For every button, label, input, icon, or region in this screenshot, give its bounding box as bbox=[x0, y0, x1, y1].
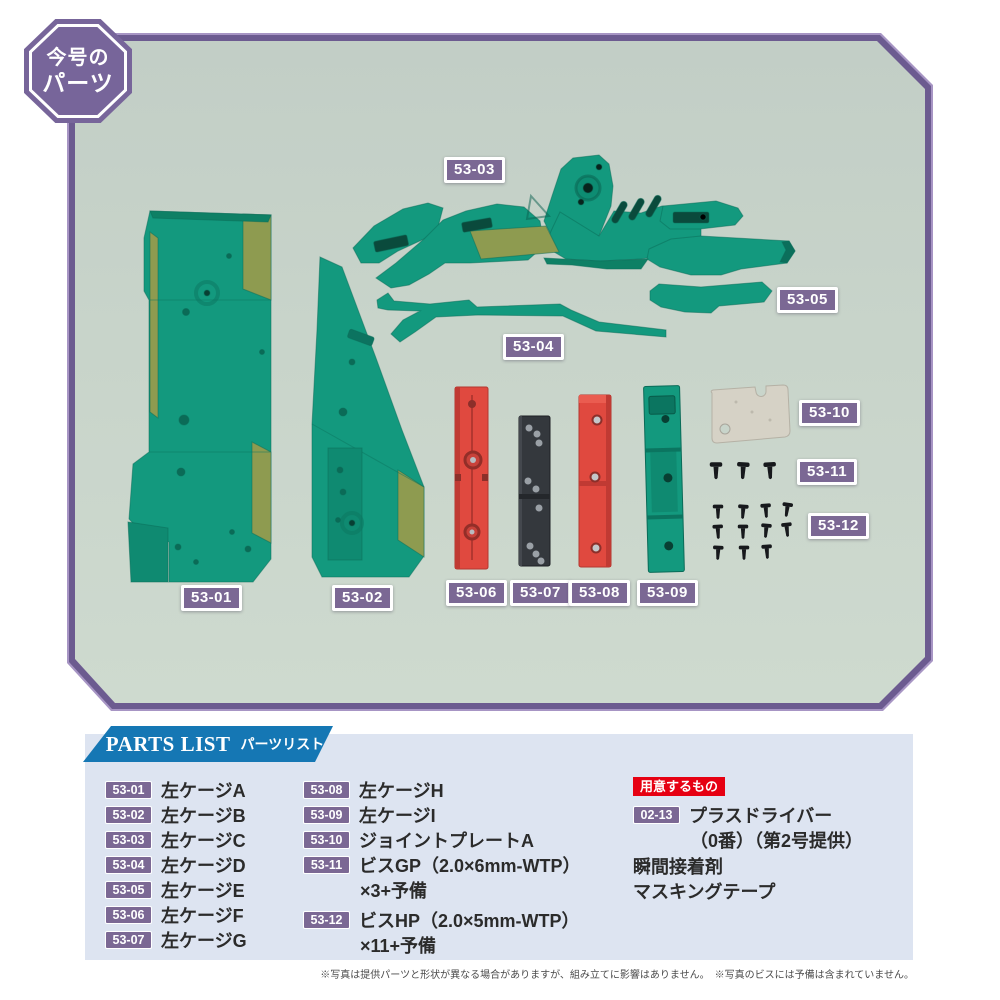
list-item: 53-01左ケージA bbox=[105, 777, 247, 802]
list-item-continuation: ×11+予備 bbox=[303, 932, 581, 958]
parts-list-title-en: PARTS LIST bbox=[106, 732, 231, 757]
code-badge: 02-13 bbox=[633, 806, 680, 824]
magazine-parts-page: { "colors": { "frame_purple": "#6c5b90",… bbox=[0, 0, 1000, 1000]
part-label-53-10: 53-10 bbox=[799, 400, 860, 426]
list-item-continuation: ×3+予備 bbox=[303, 877, 581, 903]
part-label-53-07: 53-07 bbox=[510, 580, 571, 606]
list-item: 53-04左ケージD bbox=[105, 852, 247, 877]
code-badge: 53-11 bbox=[303, 856, 350, 874]
part-label-53-05: 53-05 bbox=[777, 287, 838, 313]
code-badge: 53-06 bbox=[105, 906, 152, 924]
part-label-53-09: 53-09 bbox=[637, 580, 698, 606]
parts-list-banner: PARTS LIST パーツリスト bbox=[83, 726, 333, 762]
parts-list-title-ja: パーツリスト bbox=[240, 734, 324, 754]
list-item: 瞬間接着剤 bbox=[633, 853, 863, 878]
part-label-53-02: 53-02 bbox=[332, 585, 393, 611]
code-badge: 53-09 bbox=[303, 806, 350, 824]
part-label-53-01: 53-01 bbox=[181, 585, 242, 611]
footnote: ※写真は提供パーツと形状が異なる場合がありますが、組み立てに影響はありません。 … bbox=[85, 966, 914, 981]
list-item: 53-11ビスGP（2.0×6mm-WTP） bbox=[303, 852, 581, 877]
code-badge: 53-05 bbox=[105, 881, 152, 899]
list-item: 53-09左ケージI bbox=[303, 802, 581, 827]
code-badge: 53-01 bbox=[105, 781, 152, 799]
list-item: 53-12ビスHP（2.0×5mm-WTP） bbox=[303, 907, 581, 932]
badge-inner-octagon: 今号の パーツ bbox=[32, 27, 124, 115]
code-badge: 53-03 bbox=[105, 831, 152, 849]
prepare-header-badge: 用意するもの bbox=[633, 777, 725, 796]
parts-list-column-1: 53-01左ケージA 53-02左ケージB 53-03左ケージC 53-04左ケ… bbox=[105, 777, 247, 952]
badge-line1: 今号の bbox=[47, 46, 110, 70]
list-item: 02-13プラスドライバー bbox=[633, 802, 863, 827]
issue-parts-badge: 今号の パーツ bbox=[24, 19, 132, 123]
list-item-continuation: （0番）（第2号提供） bbox=[633, 827, 863, 853]
code-badge: 53-12 bbox=[303, 911, 350, 929]
list-item: 53-03左ケージC bbox=[105, 827, 247, 852]
part-label-53-11: 53-11 bbox=[797, 459, 857, 485]
part-label-53-04: 53-04 bbox=[503, 334, 564, 360]
part-label-53-06: 53-06 bbox=[446, 580, 507, 606]
list-item: マスキングテープ bbox=[633, 878, 863, 903]
list-item: 53-02左ケージB bbox=[105, 802, 247, 827]
code-badge: 53-04 bbox=[105, 856, 152, 874]
list-item: 53-10ジョイントプレートA bbox=[303, 827, 581, 852]
code-badge: 53-08 bbox=[303, 781, 350, 799]
part-label-53-03: 53-03 bbox=[444, 157, 505, 183]
part-label-53-12: 53-12 bbox=[808, 513, 869, 539]
code-badge: 53-10 bbox=[303, 831, 350, 849]
prepare-column: 用意するもの 02-13プラスドライバー （0番）（第2号提供） 瞬間接着剤 マ… bbox=[633, 777, 863, 903]
list-item: 53-08左ケージH bbox=[303, 777, 581, 802]
badge-line2: パーツ bbox=[42, 70, 114, 96]
list-item: 53-07左ケージG bbox=[105, 927, 247, 952]
code-badge: 53-02 bbox=[105, 806, 152, 824]
list-item: 53-05左ケージE bbox=[105, 877, 247, 902]
list-item: 53-06左ケージF bbox=[105, 902, 247, 927]
code-badge: 53-07 bbox=[105, 931, 152, 949]
part-label-53-08: 53-08 bbox=[569, 580, 630, 606]
parts-list-column-2: 53-08左ケージH 53-09左ケージI 53-10ジョイントプレートA 53… bbox=[303, 777, 581, 958]
